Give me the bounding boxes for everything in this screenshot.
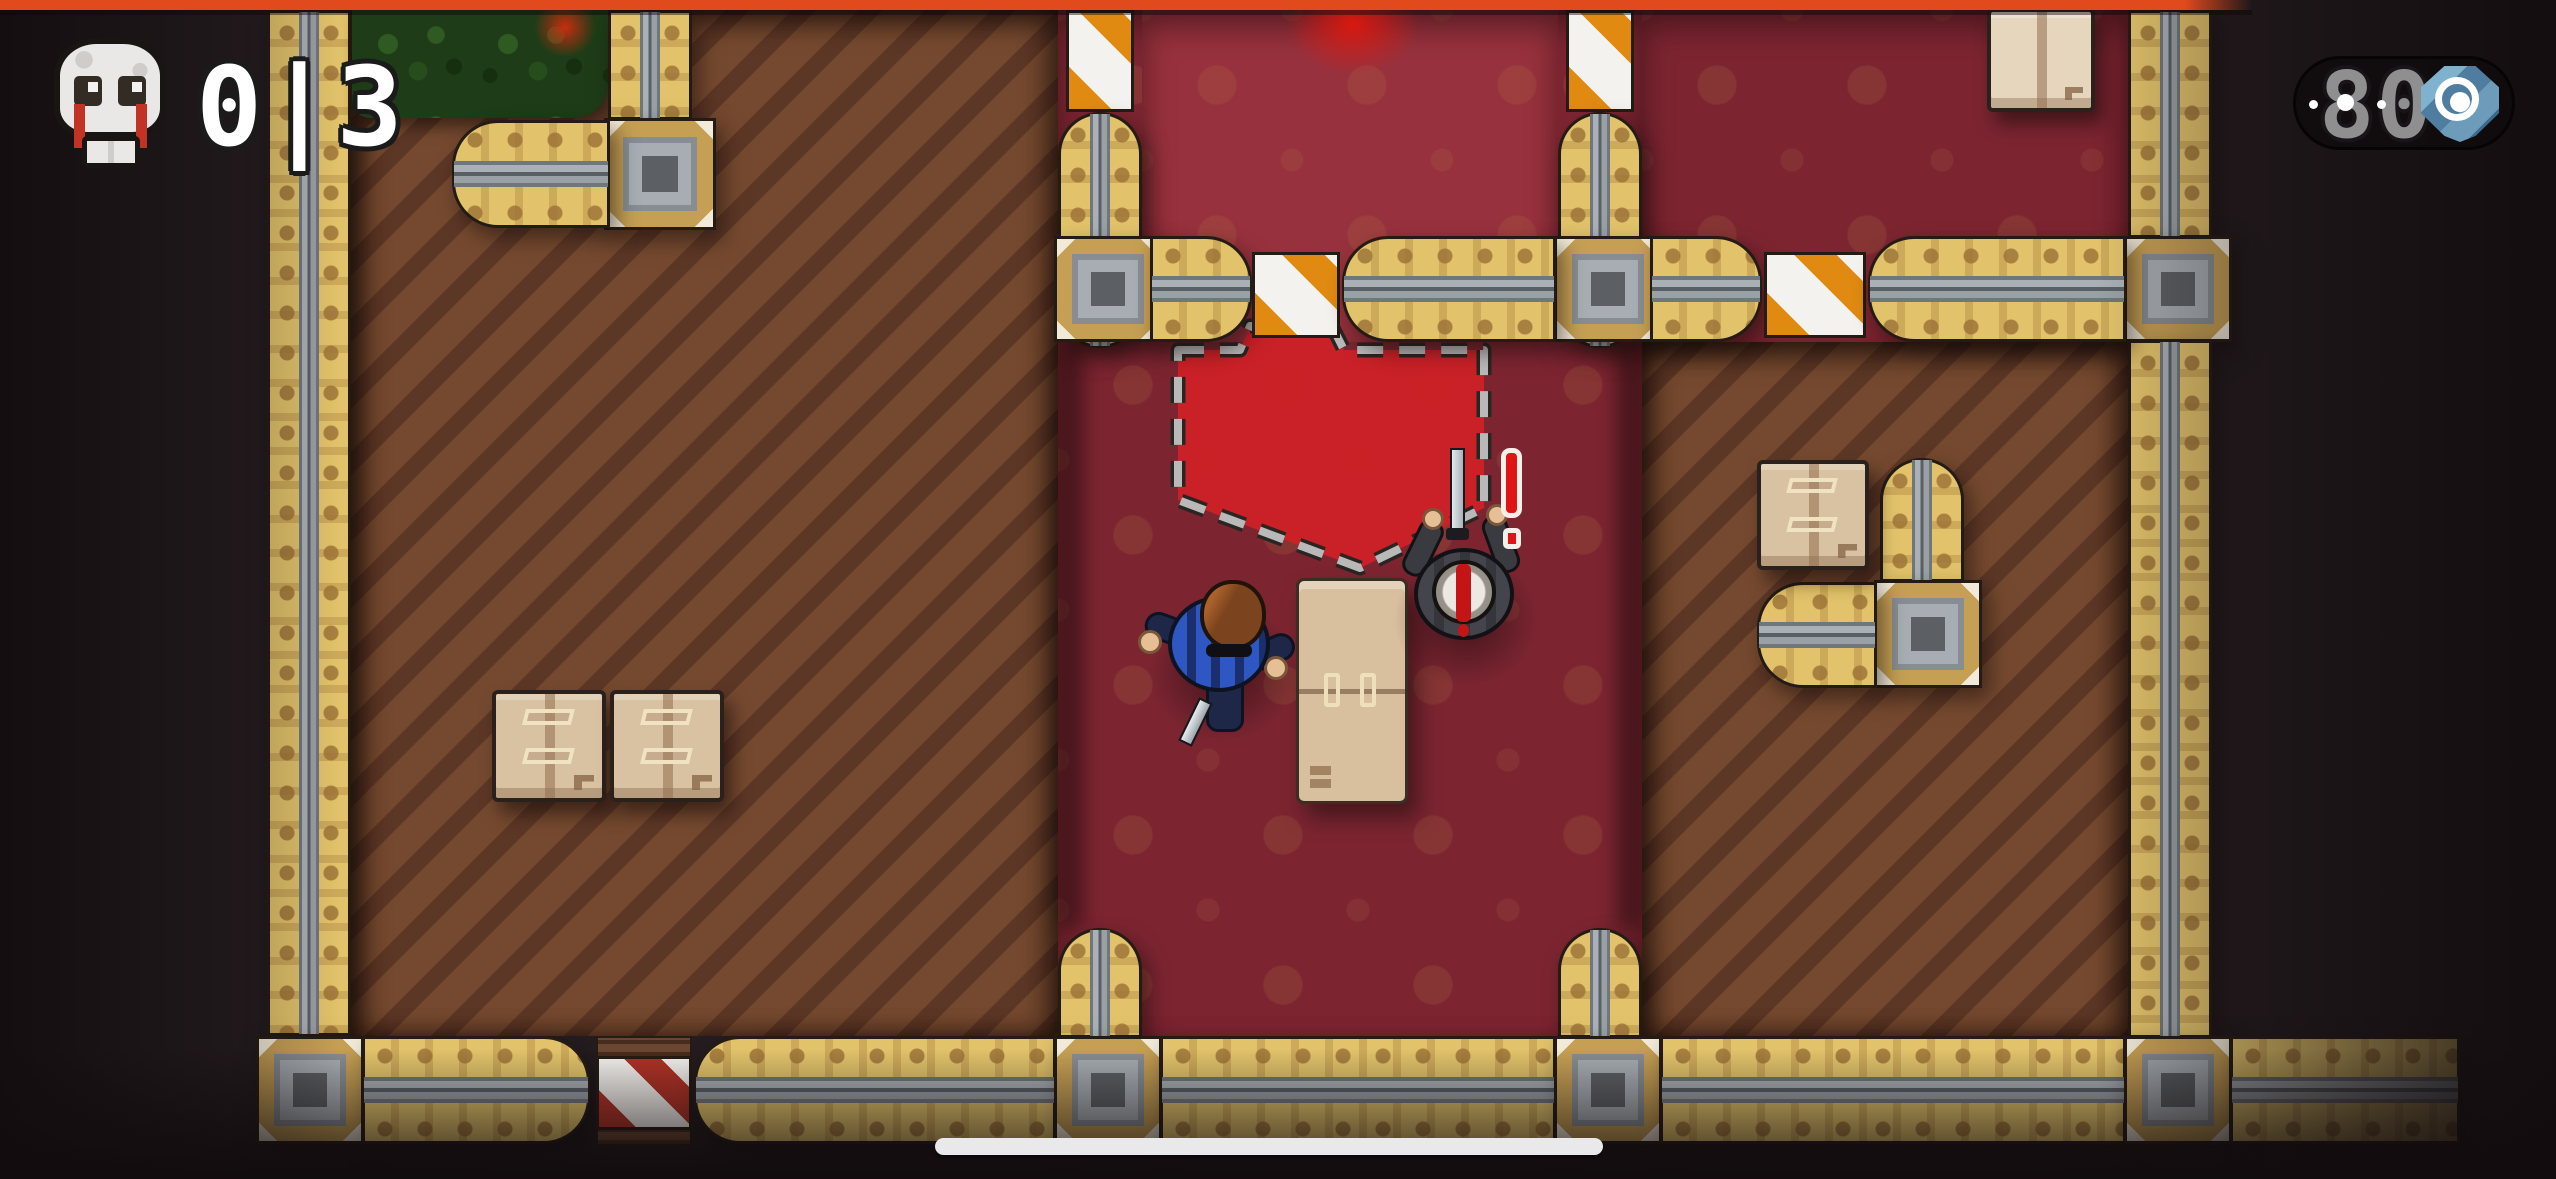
wall-corner-block (1054, 236, 1162, 342)
wall-bottom-a (362, 1036, 590, 1144)
barricade-orange (1066, 10, 1134, 112)
wall-rail (2160, 342, 2180, 1036)
wall-right-outer-bottom (2128, 340, 2212, 1038)
blood-streak (1456, 564, 1471, 622)
wall-row2-left (1650, 236, 1762, 342)
wall-rail (1344, 276, 1554, 302)
player-sunglasses (1206, 644, 1252, 657)
table-mark (1310, 766, 1331, 788)
sparkle-dot (2337, 94, 2354, 111)
wall-row2-right (1868, 236, 2126, 342)
wall-corner-block (1554, 1036, 1662, 1144)
kill-counter: 0|3 (196, 52, 407, 162)
crate-stamp (2065, 87, 2083, 100)
wall-corner-block (1554, 236, 1662, 342)
katana-icon (1450, 448, 1465, 534)
alert-bar (1501, 448, 1522, 518)
skull-cranium (54, 38, 166, 138)
barricade-orange (1566, 10, 1634, 112)
player-hand (1138, 630, 1162, 654)
blood-glow (1258, 0, 1448, 120)
katana-hilt (1446, 528, 1469, 540)
sparkle-dot (2377, 100, 2386, 109)
skull-pupil (132, 82, 142, 92)
home-indicator[interactable] (935, 1138, 1603, 1155)
crate-tape (522, 709, 575, 725)
crate (1757, 460, 1869, 570)
player-hair (1200, 580, 1266, 650)
wall-rail (1912, 460, 1932, 580)
skull-jaw (82, 136, 140, 168)
crate-stamp (692, 775, 711, 790)
enemy-hand (1422, 508, 1444, 530)
skull-pupil (88, 82, 98, 92)
wall-nook-horizontal (1757, 582, 1877, 688)
wall-bottom-e (2230, 1036, 2460, 1144)
crate-stamp (574, 775, 593, 790)
wall-rail (1152, 276, 1250, 302)
game-viewport[interactable]: ! 0|3 80 (0, 0, 2556, 1179)
crate (1987, 8, 2095, 112)
wood-floor-right-room (1642, 342, 2128, 1036)
wall-bottom-b (694, 1036, 1056, 1144)
wall-rail (1590, 930, 1610, 1036)
target-core (2450, 92, 2470, 112)
wall-corner-block (604, 118, 716, 230)
crate-tape (1786, 478, 1838, 493)
door-sill (596, 1128, 692, 1146)
wall-row1-left (1150, 236, 1252, 342)
table-seam (1299, 689, 1405, 694)
top-accent-bar (0, 0, 2252, 10)
barricade-orange (1764, 252, 1866, 338)
wall-rail (2160, 12, 2180, 236)
crate-stamp (1838, 544, 1857, 558)
wall-corner-block (2124, 1036, 2232, 1144)
wall-right-outer-top (2128, 10, 2212, 238)
wall-topleft-vertical (608, 10, 692, 120)
crate-tape-band (2037, 12, 2047, 108)
crate (492, 690, 606, 802)
alert-dot (1503, 528, 1521, 549)
doorway-floor-shadow (1056, 342, 1084, 928)
wall-centerleft-bottom (1058, 928, 1142, 1038)
wall-centerright-bottom (1558, 928, 1642, 1038)
wall-rail (1759, 622, 1875, 648)
wall-rail (1870, 276, 2124, 302)
crate (610, 690, 724, 802)
skull-icon (44, 38, 176, 174)
wall-rail (1652, 276, 1760, 302)
wall-rail (364, 1077, 588, 1104)
wall-rail (454, 161, 608, 188)
table-handle (1360, 673, 1376, 707)
wall-nook-vertical (1880, 458, 1964, 582)
barricade-red (596, 1056, 692, 1130)
barricade-orange (1252, 252, 1340, 338)
crate-tape (522, 748, 575, 764)
wall-corner-block (1874, 580, 1982, 688)
wall-corner-block (2124, 236, 2232, 342)
crate-tape (1786, 517, 1838, 532)
wall-topleft-horizontal (452, 120, 610, 228)
player-character (1148, 572, 1300, 744)
wall-corner-block (256, 1036, 364, 1144)
bush-red-spot (530, 8, 600, 56)
resource-counter[interactable]: 80 (2293, 56, 2515, 150)
wall-corner-block (1054, 1036, 1162, 1144)
wall-rail (696, 1077, 1054, 1104)
wall-rail (1090, 930, 1110, 1036)
wall-rail (1662, 1077, 2124, 1104)
wall-bottom-c (1160, 1036, 1556, 1144)
crate-tape (640, 709, 693, 725)
alert-exclamation-icon: ! (1492, 448, 1534, 560)
crate-tape (640, 748, 693, 764)
door-sill (596, 1036, 692, 1058)
wall-rail (2232, 1077, 2458, 1104)
wall-row1-right (1342, 236, 1556, 342)
wall-rail (1162, 1077, 1554, 1104)
table-handle (1324, 673, 1340, 707)
wall-rail (640, 12, 660, 118)
sparkle-dot (2309, 100, 2318, 109)
top-shadow-strip (0, 10, 2252, 15)
doorway-floor-shadow (1616, 342, 1644, 928)
wall-bottom-d (1660, 1036, 2126, 1144)
player-hand (1264, 656, 1288, 680)
blood-drip (1458, 624, 1469, 637)
